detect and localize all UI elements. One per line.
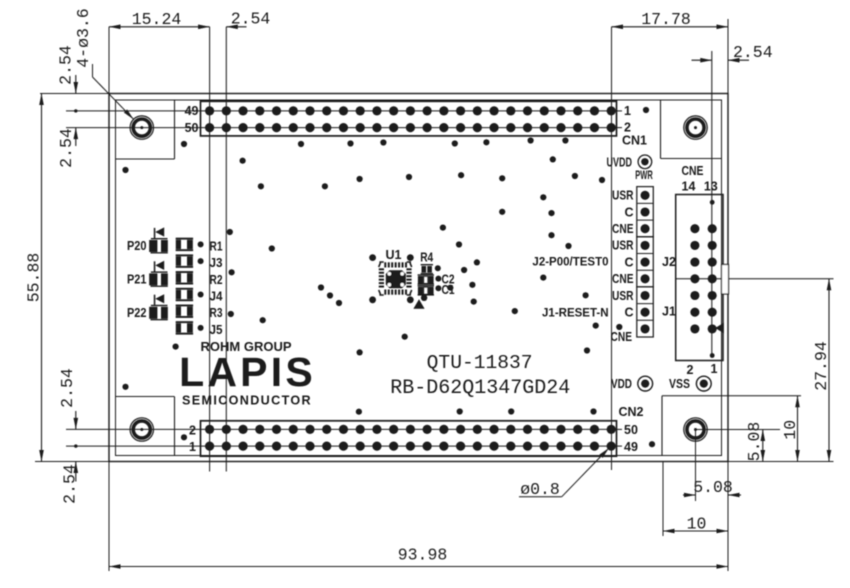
svg-text:P22: P22 — [127, 306, 147, 320]
svg-text:2: 2 — [624, 121, 631, 135]
svg-text:P20: P20 — [127, 239, 147, 253]
svg-text:CNE: CNE — [682, 164, 704, 178]
svg-text:CNE: CNE — [611, 330, 633, 344]
svg-text:SEMICONDUCTOR: SEMICONDUCTOR — [182, 393, 312, 407]
svg-text:J1: J1 — [662, 305, 676, 319]
svg-text:RB-D62Q1347GD24: RB-D62Q1347GD24 — [390, 377, 570, 400]
svg-text:5.08: 5.08 — [693, 478, 733, 497]
svg-text:QTU-11837: QTU-11837 — [427, 352, 533, 374]
svg-text:J2-P00/TEST0: J2-P00/TEST0 — [532, 256, 608, 268]
svg-text:1: 1 — [711, 362, 718, 376]
svg-text:VDD: VDD — [611, 377, 632, 391]
svg-text:2.54: 2.54 — [58, 368, 77, 408]
svg-text:PWR: PWR — [635, 168, 653, 182]
svg-text:J5: J5 — [210, 323, 223, 337]
svg-text:LAPIS: LAPIS — [179, 349, 316, 395]
svg-text:R3: R3 — [210, 306, 223, 320]
svg-text:55.88: 55.88 — [25, 253, 44, 303]
svg-text:CNE: CNE — [612, 272, 634, 286]
svg-text:1: 1 — [189, 440, 196, 454]
svg-text:2.54: 2.54 — [57, 128, 76, 168]
svg-text:R1: R1 — [210, 239, 223, 253]
svg-text:49: 49 — [624, 440, 638, 454]
svg-text:J4: J4 — [210, 290, 223, 304]
svg-text:U1: U1 — [386, 248, 402, 262]
svg-text:2.54: 2.54 — [733, 43, 773, 62]
svg-text:93.98: 93.98 — [398, 546, 448, 565]
svg-text:50: 50 — [624, 423, 638, 437]
svg-text:C: C — [624, 205, 633, 219]
svg-text:2: 2 — [687, 363, 694, 377]
svg-text:2: 2 — [189, 423, 196, 437]
svg-text:2.54: 2.54 — [231, 10, 271, 29]
svg-text:J1-RESET-N: J1-RESET-N — [542, 308, 608, 320]
svg-text:VSS: VSS — [669, 377, 690, 391]
svg-text:USR: USR — [612, 289, 634, 303]
svg-text:C: C — [624, 306, 633, 320]
svg-text:CNE: CNE — [612, 222, 634, 236]
svg-text:15.24: 15.24 — [132, 10, 182, 29]
svg-text:USR: USR — [612, 239, 634, 253]
svg-text:5.08: 5.08 — [745, 422, 764, 462]
svg-text:49: 49 — [185, 104, 199, 118]
svg-text:27.94: 27.94 — [812, 341, 831, 391]
svg-text:CN2: CN2 — [619, 405, 644, 419]
svg-text:10: 10 — [781, 420, 800, 440]
svg-text:UVDD: UVDD — [607, 155, 633, 169]
svg-text:50: 50 — [185, 121, 199, 135]
svg-text:2.54: 2.54 — [57, 45, 76, 85]
svg-text:J3: J3 — [210, 256, 223, 270]
svg-text:10: 10 — [687, 515, 707, 534]
svg-text:14: 14 — [682, 180, 696, 194]
svg-text:17.78: 17.78 — [641, 10, 691, 29]
svg-text:R4: R4 — [420, 250, 433, 264]
svg-text:1: 1 — [624, 104, 631, 118]
svg-text:C: C — [624, 255, 633, 269]
svg-text:4-ø3.6: 4-ø3.6 — [74, 8, 93, 67]
svg-text:ø0.8: ø0.8 — [520, 480, 560, 499]
svg-text:13: 13 — [704, 180, 718, 194]
svg-text:CN1: CN1 — [622, 134, 647, 148]
svg-text:USR: USR — [612, 189, 634, 203]
svg-text:2.54: 2.54 — [61, 464, 80, 504]
svg-text:P21: P21 — [127, 273, 147, 287]
svg-text:R2: R2 — [210, 273, 223, 287]
svg-text:J2: J2 — [662, 255, 676, 269]
